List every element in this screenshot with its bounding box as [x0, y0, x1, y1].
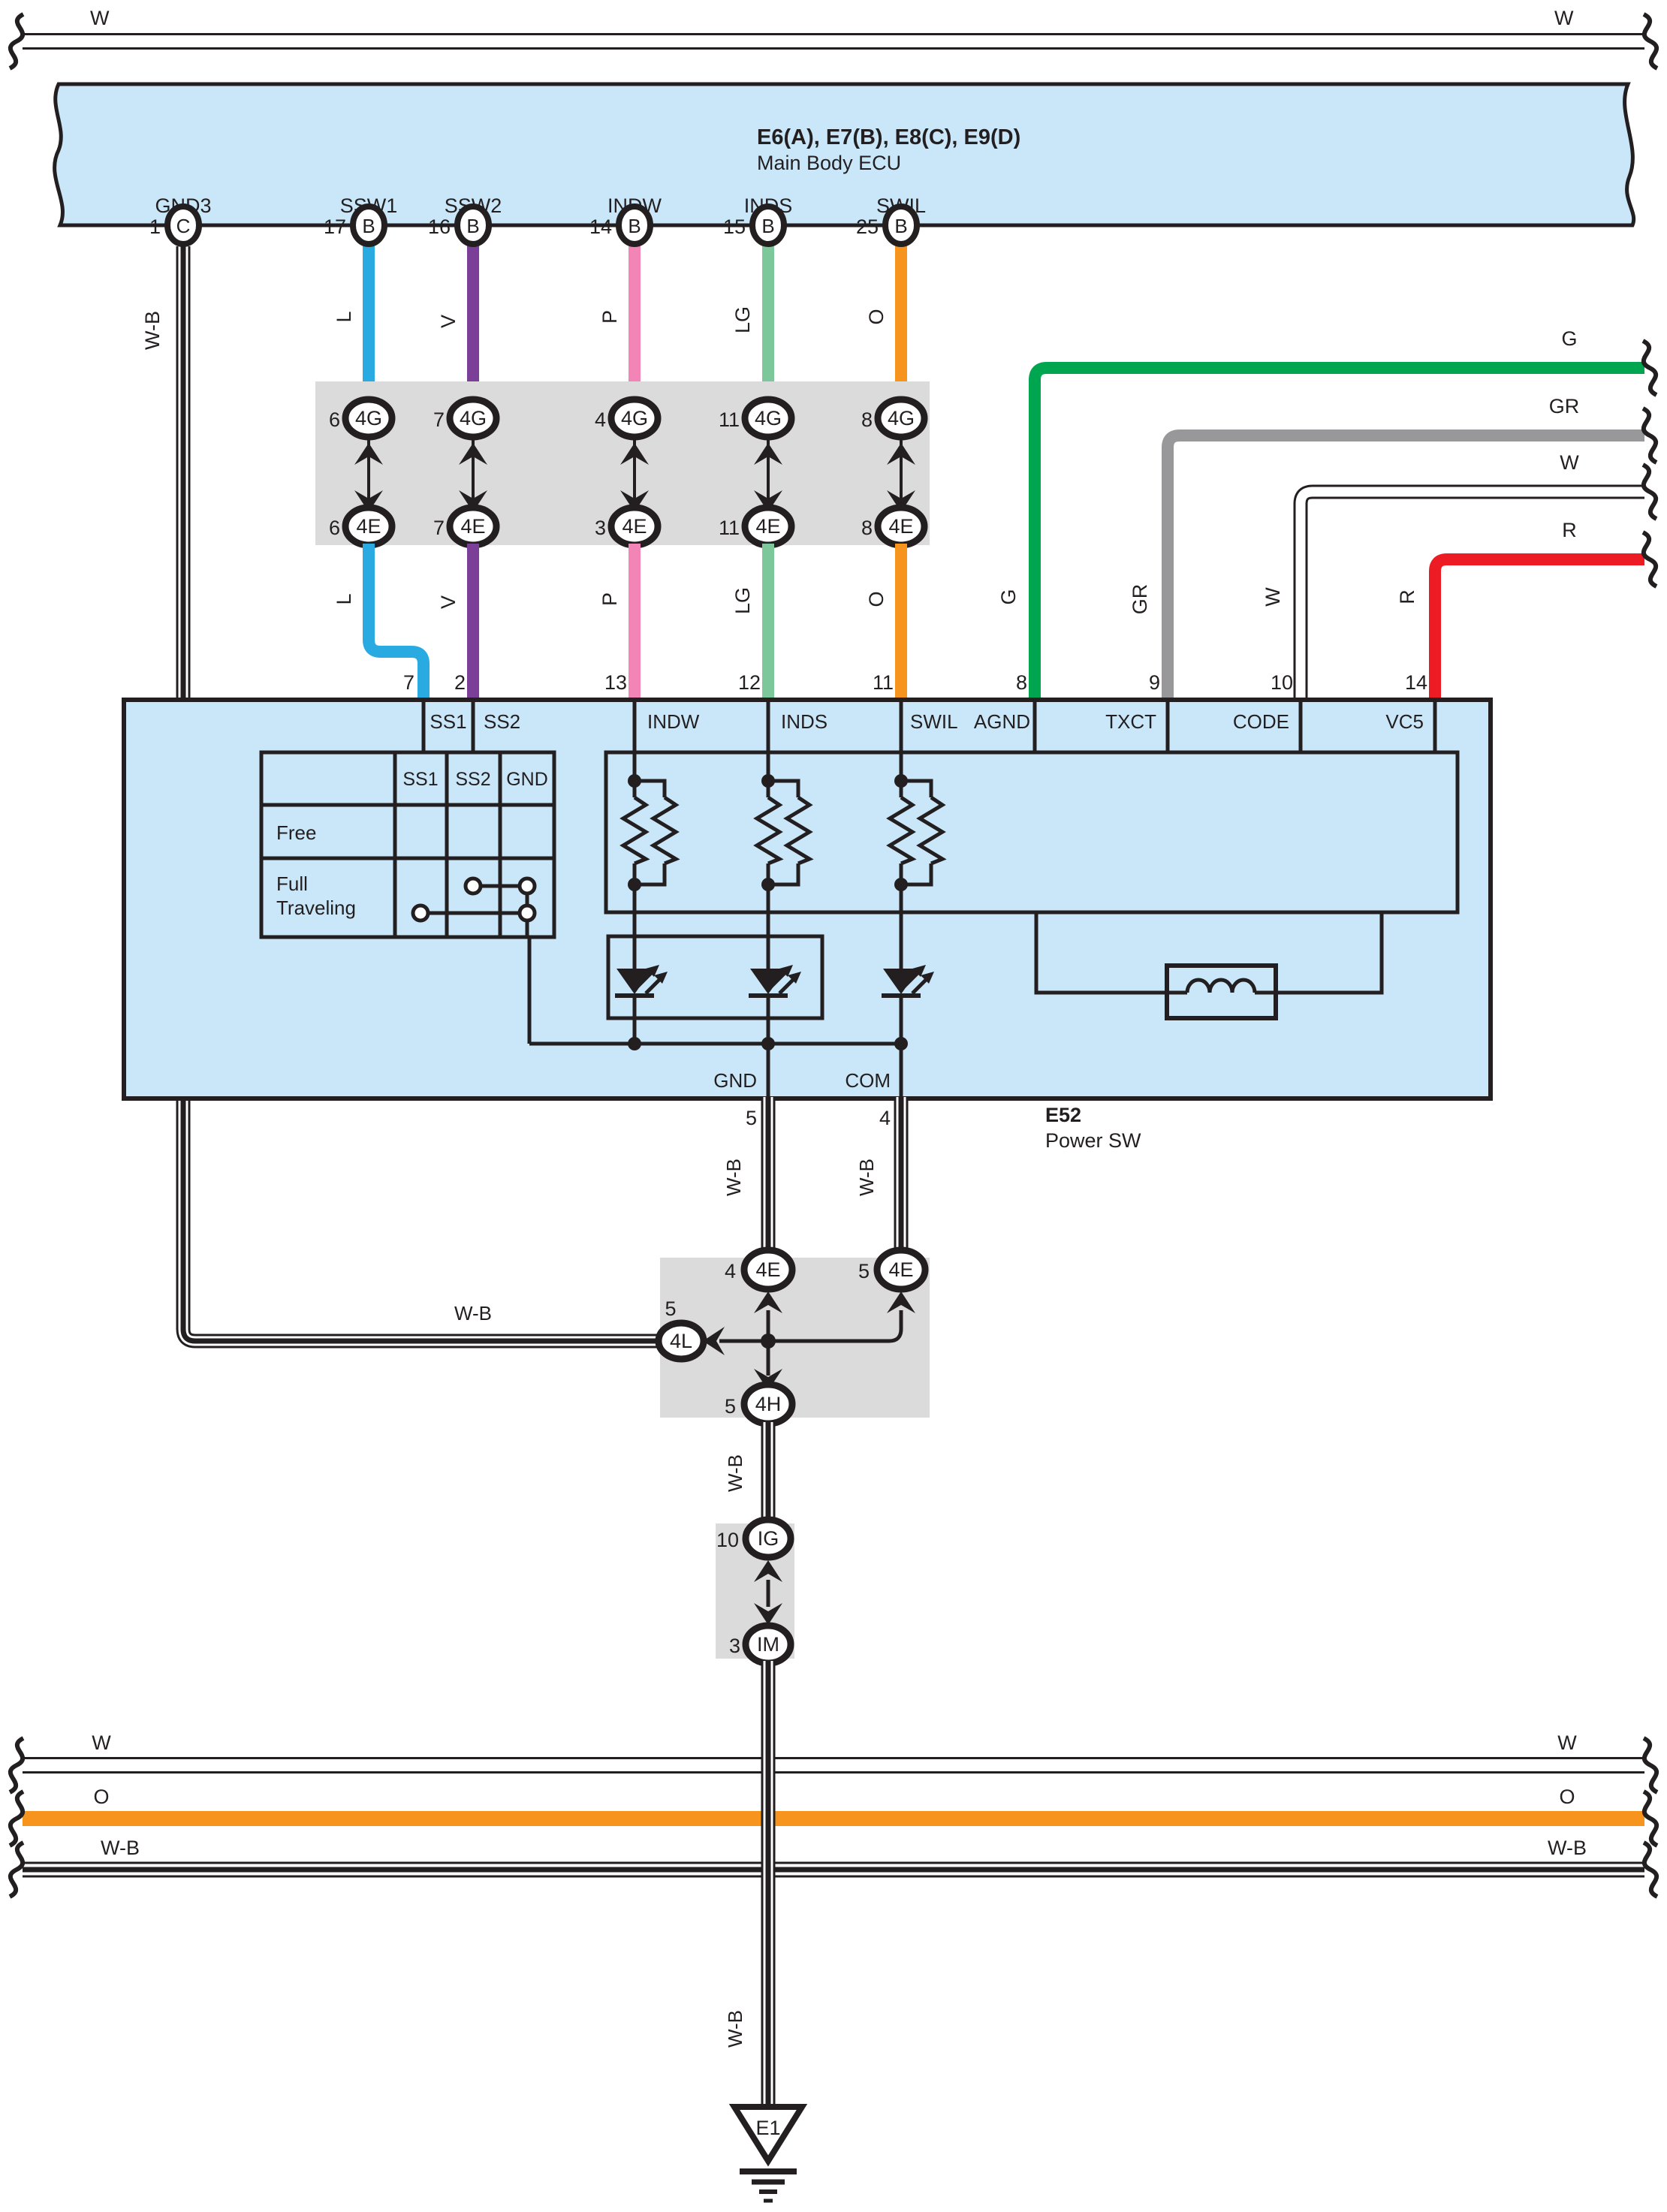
connector-label: 4E — [888, 515, 913, 538]
bus-label: W — [1554, 7, 1574, 29]
connector-label: 4G — [355, 407, 382, 429]
wire-w — [1301, 492, 1644, 698]
power-sw-pin-numbers: 7 2 13 12 11 8 9 10 14 — [403, 671, 1427, 694]
wire-color-label: LG — [731, 306, 754, 333]
connector-label: 4G — [888, 407, 915, 429]
connector-label: 4E — [755, 515, 780, 538]
ground-e1: W-B E1 — [724, 1661, 802, 2201]
pin-number: 4 — [725, 1260, 736, 1282]
wire-color-label: L — [333, 593, 355, 604]
pin-number: 11 — [719, 408, 740, 431]
bus-label: W-B — [101, 1837, 140, 1859]
pin-number: 17 — [324, 215, 346, 238]
component-id: E52 — [1045, 1104, 1081, 1126]
connector-label: 4E — [888, 1258, 913, 1281]
wire-color-label: R — [1396, 589, 1418, 604]
table-row-label: Free — [276, 821, 316, 844]
ecu-subtitle: Main Body ECU — [757, 152, 901, 174]
connector-label: 4H — [755, 1393, 782, 1415]
pin-number: 8 — [1016, 671, 1027, 694]
wire-break-icon — [1644, 1738, 1657, 1792]
connector-label: 4E — [622, 515, 647, 538]
pin-number: 5 — [746, 1107, 757, 1129]
connector-letter: B — [362, 215, 375, 237]
pin-number: 16 — [428, 215, 451, 238]
bus-label: W — [1557, 1731, 1577, 1754]
connector-letter: B — [628, 215, 641, 237]
wire-break-icon — [1643, 341, 1656, 395]
diagram-canvas: W W W-B L V P LG O E6(A), E7(B), E8(C), … — [0, 0, 1667, 2212]
pin-number: 5 — [858, 1260, 870, 1282]
wire-color-label: W-B — [724, 2010, 746, 2048]
wire-color-label: GR — [1129, 584, 1151, 615]
junction-block-ig-im: IG IM 10 3 — [716, 1520, 794, 1663]
connector-label: 4E — [755, 1258, 780, 1281]
connector-label: 4E — [356, 515, 381, 538]
pin-number: 11 — [873, 671, 894, 694]
wire-break-icon — [10, 1843, 23, 1897]
pin-name: GND — [713, 1069, 757, 1092]
wire-color-label: V — [437, 315, 460, 328]
bus-label: W — [90, 7, 110, 29]
pin-name: SS1 — [430, 710, 466, 733]
connector-label: IG — [758, 1527, 779, 1550]
wire-color-label: GR — [1549, 395, 1580, 417]
wire-color-label: O — [865, 591, 888, 607]
wire-color-label: R — [1562, 519, 1577, 541]
pin-number: 14 — [589, 215, 612, 238]
wire-break-icon — [1644, 1843, 1657, 1897]
table-row-label: Full — [276, 872, 308, 895]
wire-color-label: L — [333, 311, 355, 322]
pin-number: 8 — [861, 517, 873, 539]
pin-number: 14 — [1405, 671, 1427, 694]
wire-break-icon — [1643, 532, 1656, 586]
connector-letter: B — [466, 215, 479, 237]
bus-label: W — [92, 1731, 111, 1754]
connector-letter: C — [176, 215, 191, 237]
table-header: GND — [506, 769, 548, 790]
pin-number: 5 — [725, 1395, 736, 1418]
ground-id: E1 — [755, 2117, 780, 2139]
wire-color-label: O — [865, 309, 888, 324]
connector-letter: B — [894, 215, 907, 237]
power-sw-e52: 7 2 13 12 11 8 9 10 14 SS1 SS2 INDW INDS… — [124, 671, 1491, 1098]
pin-number: 13 — [604, 671, 627, 694]
wire-gr — [1168, 435, 1644, 698]
pin-number: 1 — [149, 215, 161, 238]
pin-number: 7 — [403, 671, 414, 694]
main-body-ecu: E6(A), E7(B), E8(C), E9(D) Main Body ECU… — [55, 84, 1634, 244]
pin-name: COM — [845, 1069, 891, 1092]
pin-number: 3 — [729, 1635, 740, 1657]
junction-block-4g-4e: 4G 4E 6 6 4G 4E 7 7 4G 4E 4 3 — [315, 381, 930, 545]
ecu-title: E6(A), E7(B), E8(C), E9(D) — [757, 125, 1020, 149]
pin-name: AGND — [974, 710, 1030, 733]
pin-number: 15 — [723, 215, 746, 238]
wire-break-icon — [1644, 14, 1657, 68]
gnd-com-wires: 5 4 W-B W-B — [722, 1097, 901, 1259]
pin-name: VC5 — [1385, 710, 1424, 733]
wiring-diagram: W W W-B L V P LG O E6(A), E7(B), E8(C), … — [0, 0, 1667, 2212]
pin-number: 6 — [329, 408, 340, 431]
wire-l — [369, 544, 424, 701]
pin-number: 8 — [861, 408, 873, 431]
wire-color-label: G — [997, 589, 1020, 604]
wire-break-icon — [10, 1738, 23, 1792]
pin-number: 6 — [329, 517, 340, 539]
pin-number: 10 — [716, 1529, 739, 1551]
bus-label: O — [93, 1786, 109, 1808]
connector-label: 4G — [621, 407, 648, 429]
wire-r — [1435, 559, 1644, 698]
pin-number: 2 — [454, 671, 466, 694]
wire-color-label: LG — [731, 587, 754, 614]
connector-label: 4G — [755, 407, 782, 429]
wire-color-label: W-B — [722, 1159, 745, 1196]
wire-color-label: W-B — [454, 1302, 492, 1324]
bottom-buses: W W O O W-B W-B — [10, 1731, 1657, 1897]
pin-name: SWIL — [910, 710, 958, 733]
connector-label: IM — [757, 1633, 779, 1656]
table-header: SS2 — [455, 769, 490, 790]
pin-number: 11 — [719, 517, 740, 539]
pin-number: 10 — [1271, 671, 1293, 694]
wire-color-label: W-B — [855, 1159, 878, 1196]
pin-number: 25 — [856, 215, 879, 238]
top-power-bus: W W — [10, 7, 1657, 68]
wire-break-icon — [10, 1792, 23, 1846]
right-side-wires: G GR W R G GR W R — [997, 327, 1656, 698]
bus-label: O — [1559, 1786, 1575, 1808]
pin-name: SS2 — [484, 710, 520, 733]
connector-letter: B — [761, 215, 774, 237]
bus-label: W-B — [1548, 1837, 1587, 1859]
connector-label: 4L — [670, 1330, 692, 1352]
wire-color-label: W-B — [141, 311, 164, 350]
wire-color-label: W-B — [724, 1454, 746, 1492]
wire-g — [1035, 368, 1644, 698]
wire-color-label: P — [598, 310, 621, 324]
component-name: Power SW — [1045, 1129, 1141, 1152]
pin-number: 4 — [879, 1107, 891, 1129]
table-header: SS1 — [402, 769, 438, 790]
pin-number: 12 — [738, 671, 761, 694]
wire-color-label: W — [1262, 587, 1284, 607]
wire-wb-4h: W-B — [724, 1422, 768, 1526]
connector-label: 4G — [460, 407, 487, 429]
pin-number: 9 — [1149, 671, 1160, 694]
wire-break-icon — [1643, 465, 1656, 519]
pin-number: 7 — [433, 408, 445, 431]
wire-color-label: P — [598, 592, 621, 606]
pin-name: INDW — [647, 710, 700, 733]
pin-number: 3 — [595, 517, 606, 539]
pin-number: 4 — [595, 408, 606, 431]
pin-name: INDS — [781, 710, 827, 733]
wire-break-icon — [1643, 408, 1656, 463]
pin-number: 7 — [433, 517, 445, 539]
wire-color-label: V — [437, 595, 460, 609]
wire-break-icon — [10, 14, 23, 68]
ground-symbol-icon — [740, 2171, 797, 2201]
wire-color-label: G — [1561, 327, 1577, 350]
wire-color-label: W — [1560, 451, 1579, 474]
wire-break-icon — [1644, 1792, 1657, 1846]
pin-name: CODE — [1233, 710, 1289, 733]
pin-number: 5 — [665, 1297, 676, 1320]
table-row-label: Traveling — [276, 897, 356, 919]
pin-name: TXCT — [1105, 710, 1156, 733]
connector-label: 4E — [460, 515, 485, 538]
